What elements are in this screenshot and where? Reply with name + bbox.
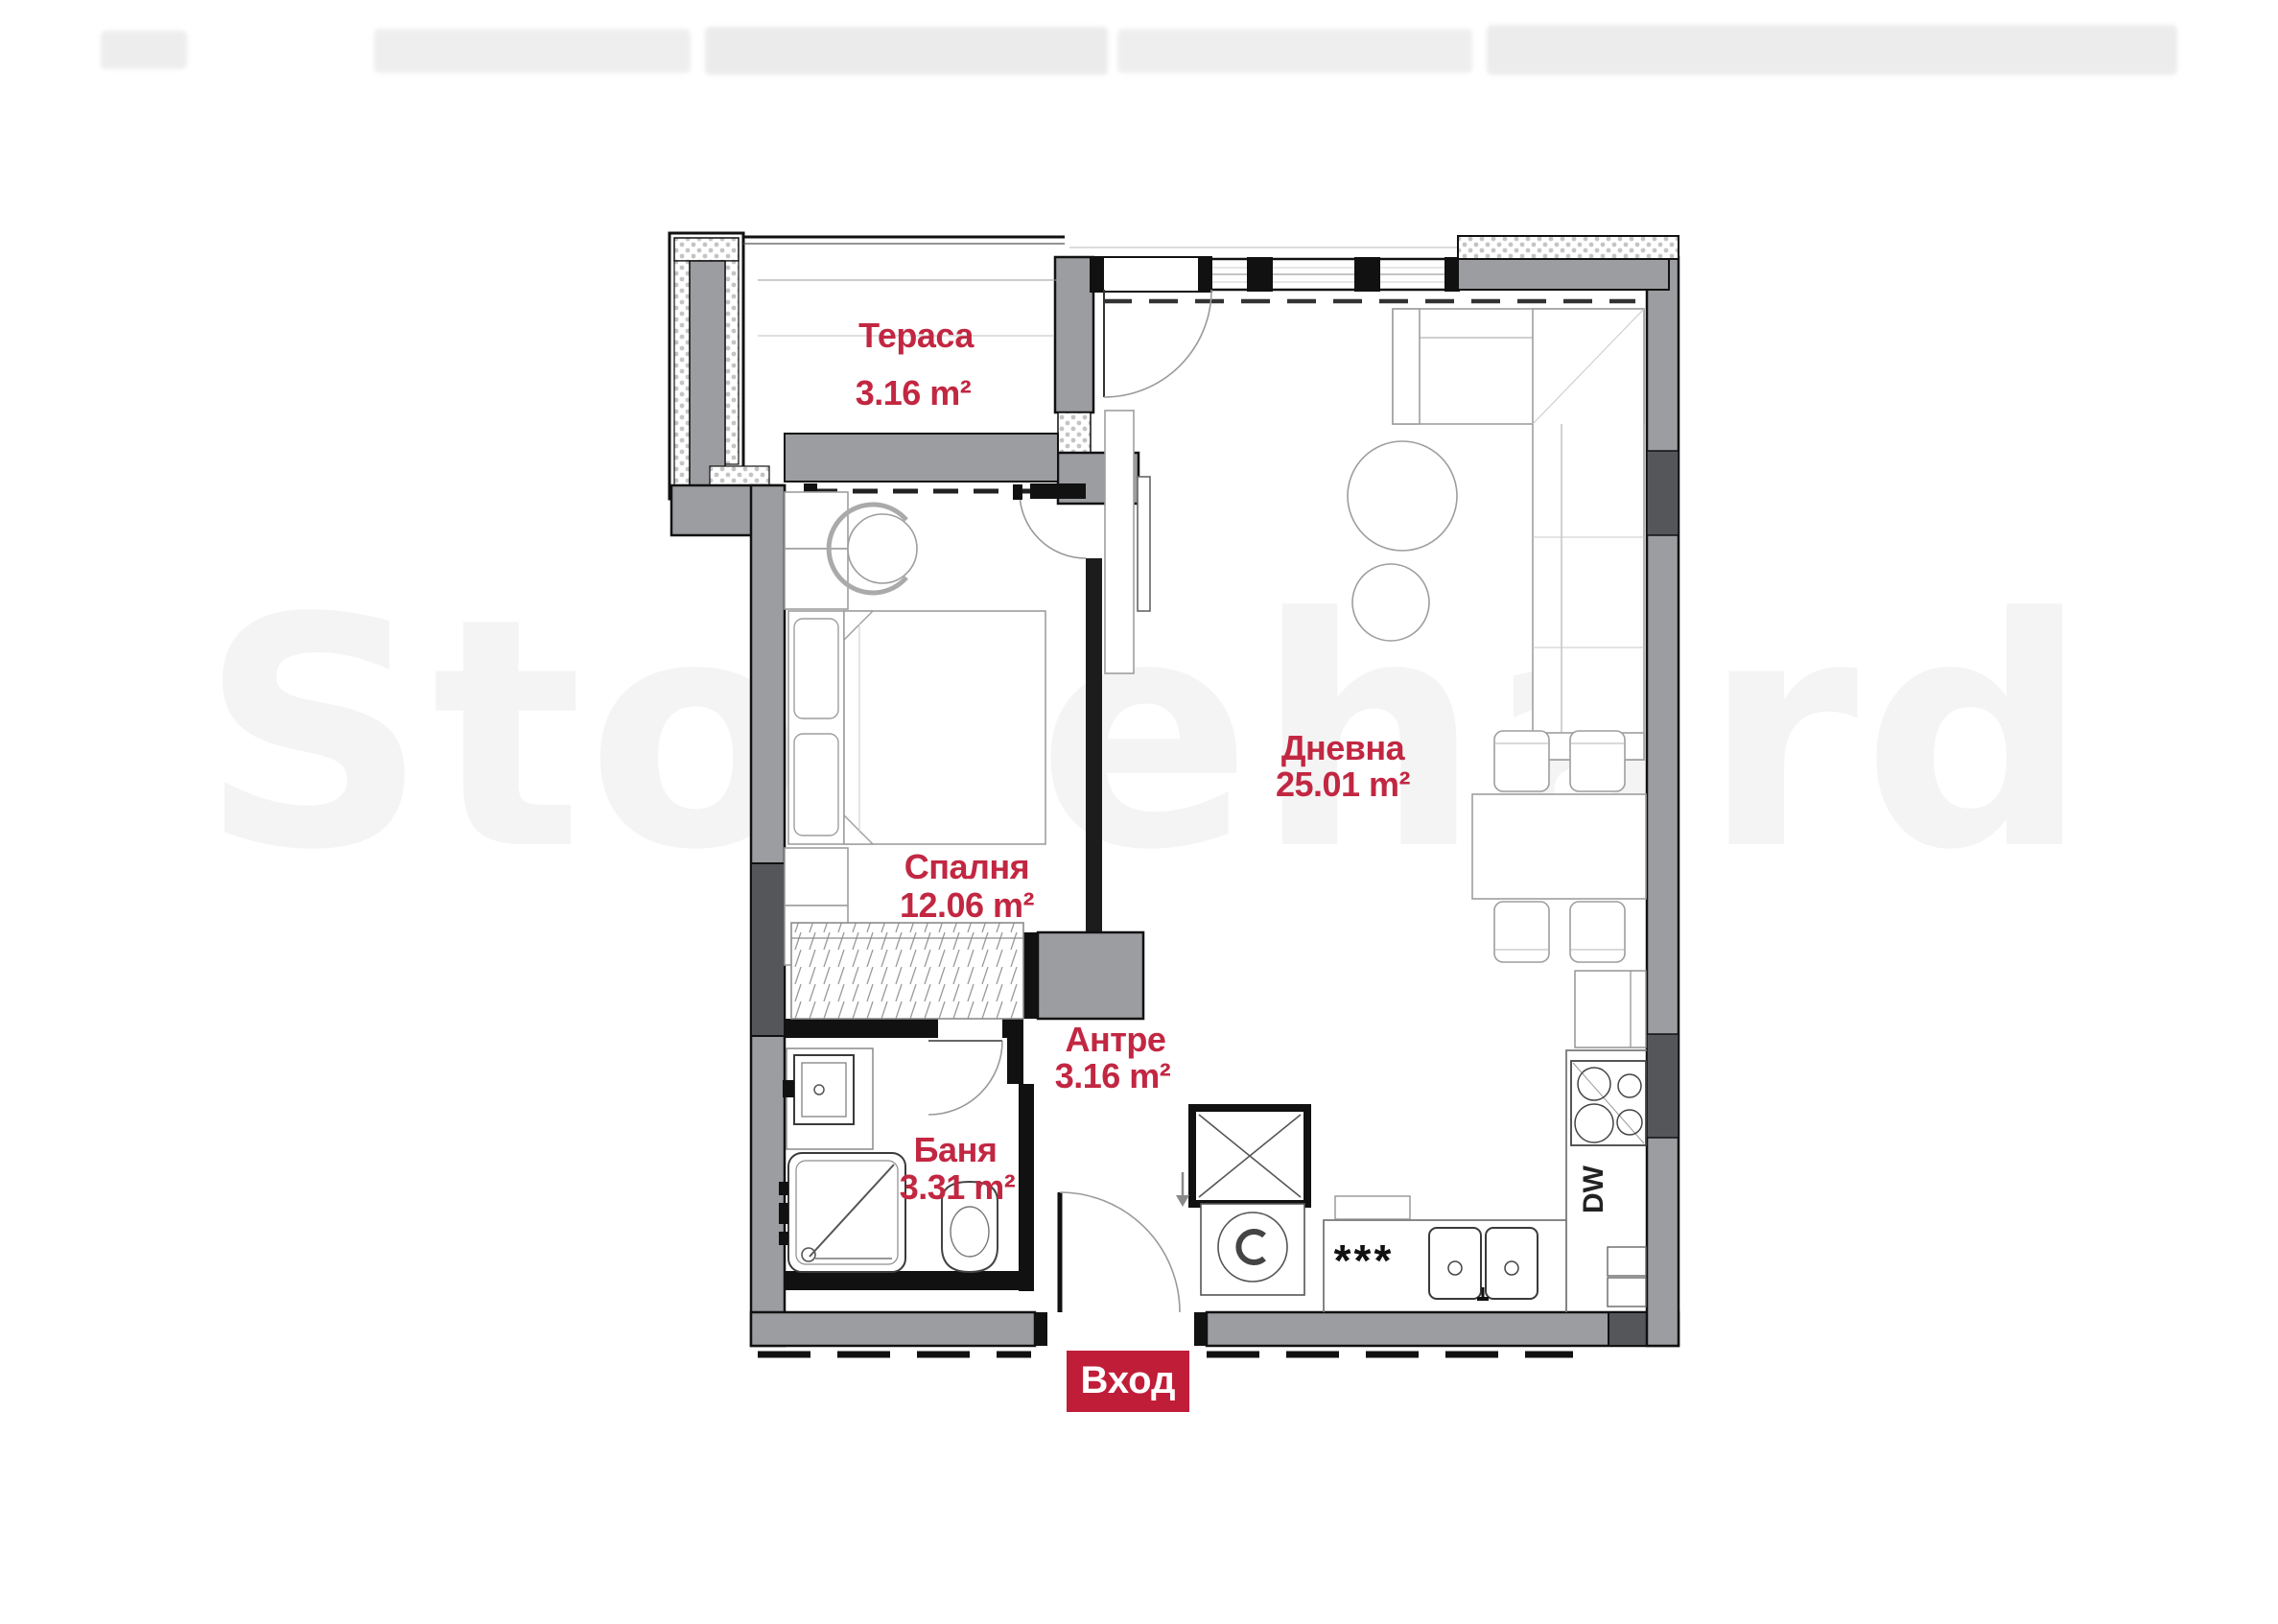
shaft-and-washer [1176, 1108, 1307, 1295]
dishwasher-label: DW [1578, 1165, 1609, 1213]
entrance-badge-label: Вход [1081, 1359, 1176, 1401]
left-wall-dark-segment [751, 863, 785, 1036]
kitchen: *** DW [1324, 971, 1647, 1312]
door-jamb [1194, 1312, 1207, 1346]
hallway-area: 3.16 m² [1055, 1056, 1171, 1095]
cabinet-box [1608, 1278, 1646, 1306]
bedroom-area: 12.06 m² [900, 885, 1035, 925]
hallway-pillar [1038, 932, 1143, 1019]
bedroom-living-wall [1086, 558, 1102, 932]
strip-fragment [1487, 25, 2177, 75]
strip-fragment [101, 31, 187, 69]
right-wall-window-dark [1647, 451, 1679, 535]
bedroom-top-wall-stub [1036, 483, 1086, 499]
right-exterior-wall [1647, 257, 1679, 1346]
terrace-parapet [785, 434, 1058, 482]
terrace-living-pillar [1055, 257, 1093, 412]
strip-fragment [374, 29, 691, 73]
top-wall-insulation [1458, 236, 1679, 259]
terrace-door [1091, 257, 1211, 397]
counter-box [1335, 1196, 1410, 1219]
door-jamb [1035, 1312, 1047, 1346]
bedroom-name: Спалня [904, 847, 1029, 886]
bathroom-right-stub [1007, 1038, 1023, 1084]
top-wall-solid [1458, 259, 1669, 290]
bathroom-bottom-wall [785, 1271, 1034, 1290]
entrance-badge: Вход [1067, 1351, 1189, 1412]
bathroom-right-wall [1019, 1084, 1034, 1291]
bathroom-door [928, 1041, 1002, 1115]
fridge-cabinet [1575, 971, 1646, 1047]
pillow [794, 734, 838, 836]
cabinet-box [1608, 1247, 1646, 1276]
terrace-left-wall [669, 233, 769, 499]
terrace-area: 3.16 m² [856, 373, 972, 412]
bathroom-name: Баня [914, 1130, 998, 1169]
entrance-door [1060, 1192, 1180, 1312]
pillar-left-strip [1023, 932, 1038, 1019]
bathroom-area: 3.31 m² [900, 1167, 1016, 1207]
hallway-name: Антре [1066, 1020, 1166, 1059]
pillow [794, 619, 838, 718]
right-wall-window-dark [1647, 1034, 1679, 1138]
living-area: 25.01 m² [1276, 765, 1411, 804]
stove-symbol: *** [1334, 1236, 1395, 1285]
terrace-name: Тераса [858, 316, 975, 355]
sink-icon [783, 1055, 854, 1124]
floor-plan-page: Stonehard [0, 0, 2278, 1624]
kitchen-sink-icon [1429, 1228, 1538, 1299]
wardrobe-icon [791, 923, 1023, 1019]
nightstand [785, 848, 848, 906]
washing-machine-icon [1201, 1204, 1304, 1295]
round-table-large [1348, 441, 1457, 551]
bathroom-top-wall-stub [1002, 1019, 1023, 1038]
strip-fragment [1117, 29, 1472, 73]
living-name: Дневна [1281, 728, 1406, 767]
pillar-insulation [1058, 412, 1091, 453]
bathroom-top-wall [785, 1019, 938, 1038]
round-table-small [1352, 564, 1429, 641]
bed-icon [788, 611, 1045, 844]
floor-plan-canvas: Stonehard [0, 0, 2278, 1624]
bottom-wall-left [751, 1312, 1035, 1346]
strip-fragment [705, 27, 1108, 75]
shower-icon [779, 1153, 905, 1272]
hob-icon [1571, 1061, 1646, 1145]
faded-top-strip [101, 25, 2177, 75]
